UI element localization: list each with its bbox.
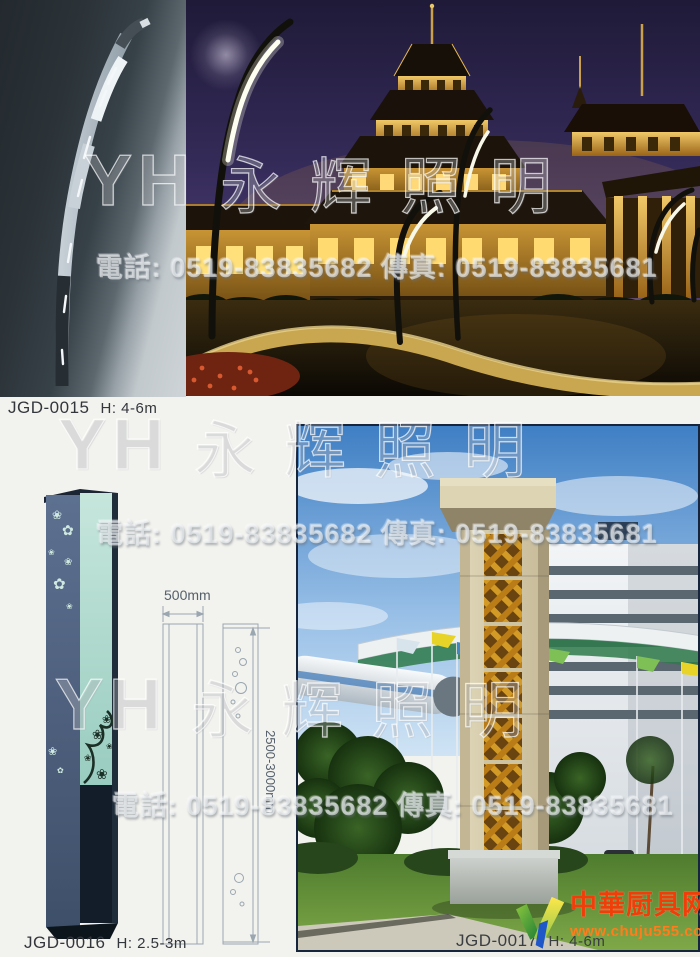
svg-text:❀: ❀ xyxy=(48,548,55,557)
product-height: H: 2.5-3m xyxy=(116,935,186,952)
svg-text:❀: ❀ xyxy=(106,742,113,751)
svg-text:❀: ❀ xyxy=(96,767,108,783)
svg-text:❀: ❀ xyxy=(84,754,92,764)
dimension-drawing: 500mm 2500-3000mm xyxy=(150,582,282,954)
site-name: 中華厨具网 xyxy=(570,891,700,921)
dimension-drawing-svg: 500mm 2500-3000mm xyxy=(150,582,282,954)
height-dimension-label: 2500-3000mm xyxy=(263,730,278,814)
product-image-jgd-0016: ❀❀ ❀❀ ❀ ❀✿ ❀❀ ✿❀ ❀✿ xyxy=(44,483,122,939)
svg-text:❀: ❀ xyxy=(102,713,111,726)
installation-photo-day xyxy=(296,424,700,952)
site-url: www.chuju555.com xyxy=(570,923,700,940)
product-label-jgd-0015: JGD-0015 H: 4-6m xyxy=(8,398,157,418)
svg-text:✿: ✿ xyxy=(53,575,66,593)
night-scene xyxy=(186,0,700,396)
svg-text:❀: ❀ xyxy=(66,602,73,611)
site-logo-icon xyxy=(516,891,566,951)
product-code: JGD-0016 xyxy=(24,933,105,953)
catalog-page: ❀❀ ❀❀ ❀ ❀✿ ❀❀ ✿❀ ❀✿ xyxy=(0,0,700,957)
curved-lamp-drawing xyxy=(0,0,186,397)
product-label-jgd-0016: JGD-0016 H: 2.5-3m xyxy=(24,933,187,953)
width-dimension-label: 500mm xyxy=(164,587,211,603)
svg-text:❀: ❀ xyxy=(92,728,103,743)
svg-text:❀: ❀ xyxy=(52,508,62,522)
svg-text:✿: ✿ xyxy=(57,766,64,775)
site-logo: 中華厨具网 www.chuju555.com xyxy=(516,891,700,951)
svg-text:❀: ❀ xyxy=(48,745,57,758)
product-code: JGD-0015 xyxy=(8,398,89,418)
svg-text:✿: ✿ xyxy=(62,523,74,539)
product-image-jgd-0015 xyxy=(0,0,186,397)
product-height: H: 4-6m xyxy=(100,400,157,417)
day-scene xyxy=(298,426,698,950)
svg-text:❀: ❀ xyxy=(64,557,72,568)
flower-column-lamp-drawing: ❀❀ ❀❀ ❀ ❀✿ ❀❀ ✿❀ ❀✿ xyxy=(44,483,122,939)
installation-photo-night xyxy=(186,0,700,396)
